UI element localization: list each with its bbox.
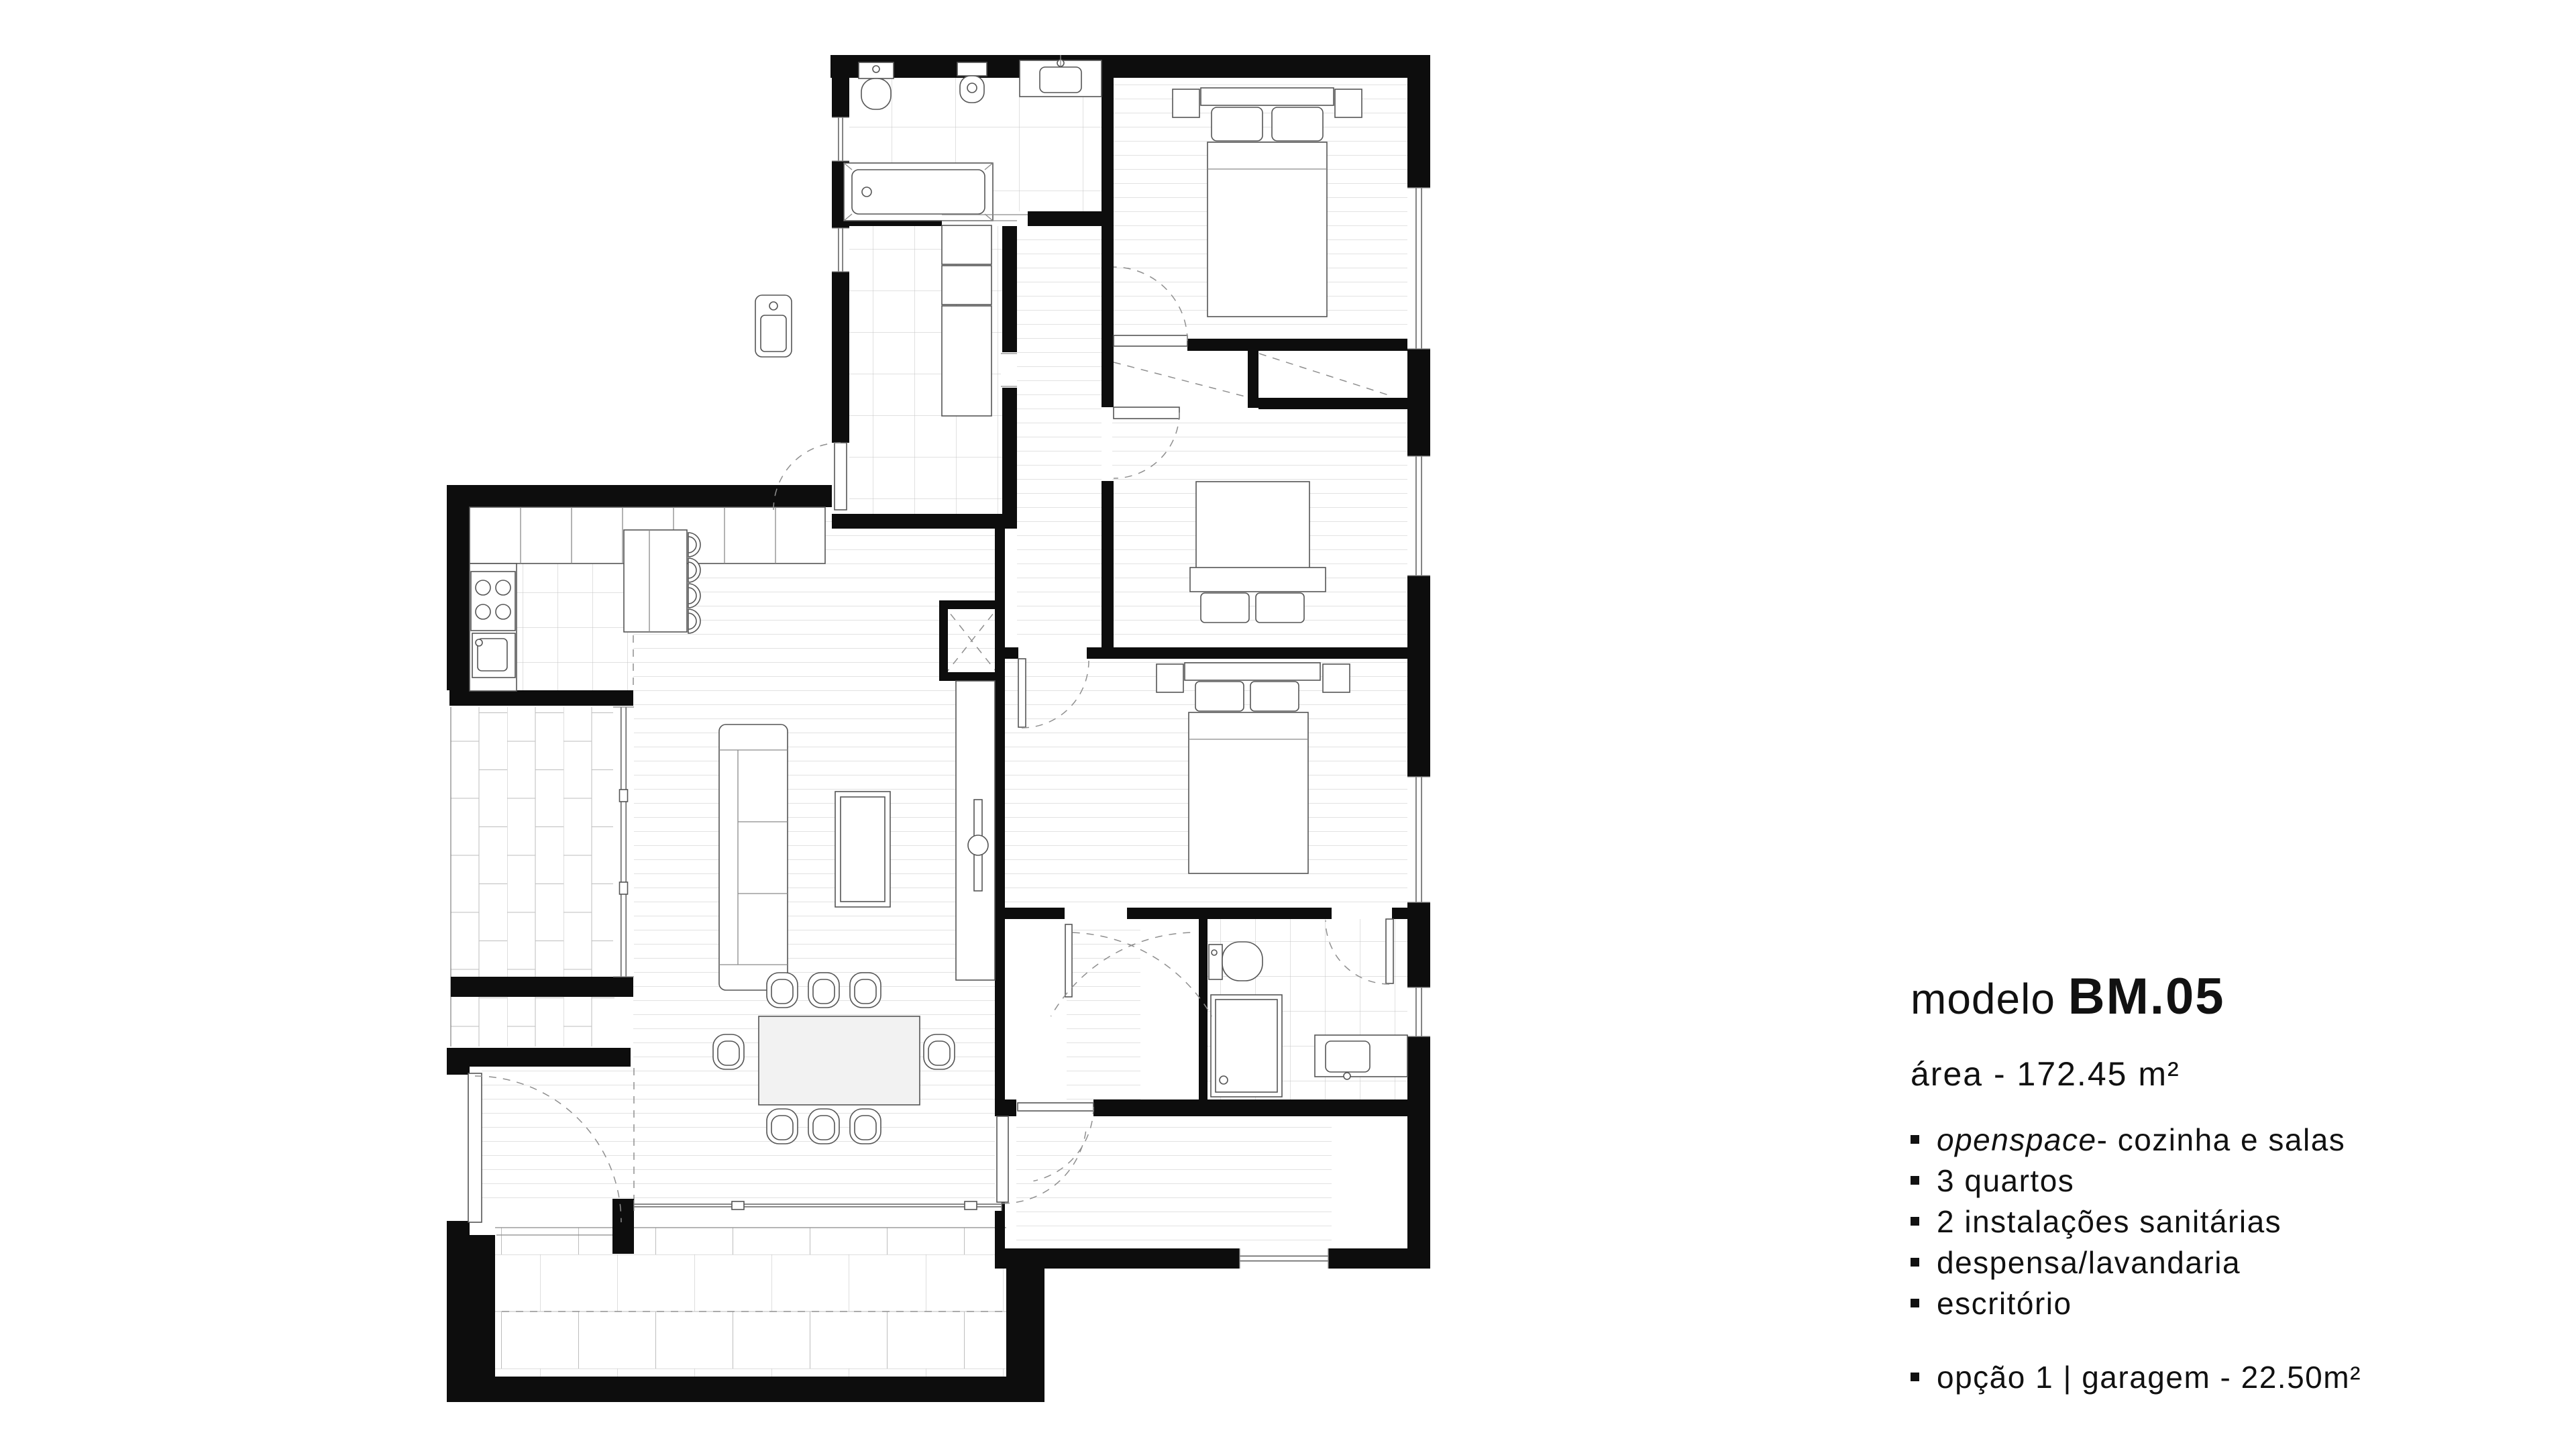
- wall-segment: [995, 600, 1005, 908]
- furniture-outline: [1189, 712, 1308, 873]
- fixture-circle: [1344, 1073, 1350, 1079]
- fixture-circle: [862, 187, 871, 197]
- window: [1407, 188, 1430, 349]
- furniture-outline: [1114, 335, 1187, 346]
- dashed-line: [1259, 354, 1389, 395]
- mullion-mark: [620, 790, 628, 802]
- chair: [924, 1034, 955, 1069]
- furniture-outline: [1326, 1041, 1370, 1072]
- window: [1407, 987, 1430, 1036]
- floor-plan-svg: [436, 40, 1442, 1409]
- window-opening: [1407, 777, 1430, 902]
- furniture-outline: [1386, 919, 1393, 983]
- feature-text: escritório: [1937, 1285, 2072, 1322]
- feature-italic: openspace: [1937, 1122, 2097, 1158]
- model-label: modelo: [1911, 975, 2068, 1023]
- furniture-outline: [719, 724, 788, 990]
- furniture-outline: [1196, 482, 1309, 569]
- wall-segment: [1407, 1036, 1430, 1269]
- furniture-outline: [1018, 659, 1026, 727]
- floor-wood: [1016, 1116, 1332, 1248]
- option-line-wrap: opção 1 | garagem - 22.50m²: [1911, 1356, 2361, 1397]
- furniture-outline: [1114, 407, 1179, 419]
- fixture-circle: [476, 580, 490, 595]
- chair-seat: [855, 979, 876, 1004]
- chair: [850, 973, 881, 1008]
- wall-segment: [995, 1099, 1016, 1116]
- chair-seat: [771, 979, 793, 1004]
- wall-segment: [995, 908, 1065, 919]
- furniture-outline: [1185, 663, 1320, 680]
- wall-segment: [1187, 339, 1407, 351]
- furniture-outline: [1173, 89, 1199, 117]
- furniture-outline: [1335, 89, 1362, 117]
- chair-seat: [928, 1041, 950, 1065]
- window: [832, 228, 849, 272]
- window: [1407, 456, 1430, 576]
- wall-segment: [447, 1377, 1044, 1402]
- furniture-outline: [1201, 88, 1334, 105]
- window-opening: [832, 228, 849, 272]
- floor-plan: [436, 40, 1442, 1409]
- window: [1407, 777, 1430, 902]
- furniture-outline: [835, 443, 847, 510]
- wall-segment: [1002, 226, 1017, 352]
- wall-segment: [1407, 576, 1430, 777]
- fixture-circle: [476, 639, 482, 646]
- floor-plan-page: modelo BM.05 área - 172.45 m² openspace …: [0, 0, 2576, 1449]
- fixture-circle: [1220, 1076, 1228, 1084]
- chair: [850, 1109, 881, 1144]
- furniture-outline: [942, 225, 991, 264]
- dashed-line: [1114, 362, 1245, 396]
- wall-segment: [447, 1221, 470, 1237]
- chair-seat: [855, 1116, 876, 1140]
- floor-brickH: [495, 1228, 1006, 1377]
- furniture-outline: [1272, 107, 1323, 141]
- fixture-circle: [496, 604, 511, 619]
- wall-segment: [1248, 349, 1258, 408]
- furniture-outline: [841, 797, 885, 902]
- floor-wood: [1017, 226, 1102, 647]
- wall-segment: [1392, 908, 1407, 919]
- area-line: área - 172.45 m²: [1911, 1055, 2180, 1093]
- window: [1240, 1248, 1328, 1269]
- window: [832, 117, 849, 161]
- chair-seat: [813, 1116, 835, 1140]
- bullet-icon: [1911, 1258, 1919, 1267]
- feature-item: openspace - cozinha e salas: [1911, 1119, 2345, 1160]
- wall-segment: [995, 518, 1005, 600]
- furniture-outline: [1250, 682, 1299, 711]
- furniture-outline: [942, 266, 991, 305]
- wall-segment: [832, 514, 1017, 529]
- wall-segment: [995, 919, 1005, 1099]
- chair: [808, 1109, 839, 1144]
- furniture-outline: [942, 306, 991, 416]
- feature-item: 3 quartos: [1911, 1160, 2345, 1201]
- window-opening: [1407, 188, 1430, 349]
- bullet-icon: [1911, 1176, 1919, 1185]
- chair: [767, 1109, 798, 1144]
- mullion-mark: [620, 882, 628, 894]
- feature-item: 2 instalações sanitárias: [1911, 1201, 2345, 1242]
- fixture-circle: [496, 580, 511, 595]
- floor-wood: [482, 1068, 633, 1209]
- wall-segment: [449, 690, 633, 706]
- wall-segment: [1102, 55, 1114, 339]
- wall-segment: [1407, 78, 1430, 188]
- window-opening: [1407, 456, 1430, 576]
- fixture-circle: [769, 302, 777, 310]
- feature-item: despensa/lavandaria: [1911, 1242, 2345, 1283]
- window-opening: [1407, 987, 1430, 1036]
- furniture-outline: [1201, 593, 1249, 623]
- furniture-outline: [1256, 593, 1304, 623]
- wall-segment: [832, 55, 849, 117]
- wall-segment: [1002, 388, 1017, 514]
- mullion-mark: [732, 1201, 744, 1210]
- furniture-outline: [861, 78, 891, 109]
- furniture-outline: [957, 62, 987, 76]
- wall-segment: [1093, 1099, 1407, 1116]
- furniture-outline: [1207, 142, 1327, 317]
- wall-segment: [1102, 339, 1114, 407]
- fixture-circle: [873, 66, 879, 72]
- window: [634, 1200, 1002, 1211]
- feature-text: despensa/lavandaria: [1937, 1244, 2241, 1281]
- feature-list: openspace - cozinha e salas3 quartos2 in…: [1911, 1119, 2345, 1324]
- furniture-outline: [1212, 107, 1263, 141]
- furniture-outline: [1222, 942, 1263, 981]
- feature-text: 3 quartos: [1937, 1163, 2074, 1199]
- fixture-circle: [968, 835, 988, 855]
- wall-segment: [447, 1048, 631, 1067]
- feature-text: - cozinha e salas: [2097, 1122, 2346, 1158]
- furniture-outline: [1065, 924, 1072, 997]
- wall-segment: [1258, 398, 1407, 409]
- wall-segment: [1407, 349, 1430, 456]
- window-opening: [1240, 1248, 1328, 1269]
- wall-segment: [447, 1067, 470, 1075]
- bullet-icon: [1911, 1299, 1919, 1307]
- wall-segment: [1028, 211, 1102, 226]
- chair: [767, 973, 798, 1008]
- furniture-outline: [624, 530, 687, 632]
- window-opening: [634, 1200, 1002, 1211]
- furniture-outline: [1040, 67, 1081, 93]
- feature-item: escritório: [1911, 1283, 2345, 1324]
- wall-segment: [1087, 647, 1407, 659]
- wall-segment: [1127, 908, 1332, 919]
- wall-segment: [1328, 1248, 1407, 1269]
- table-top: [759, 1016, 920, 1105]
- chair: [713, 1034, 744, 1069]
- furniture-outline: [1190, 568, 1326, 592]
- wall-segment: [612, 1199, 634, 1254]
- chair: [808, 973, 839, 1008]
- furniture-outline: [761, 315, 786, 352]
- option-line: opção 1 | garagem - 22.50m²: [1911, 1356, 2361, 1397]
- wall-segment: [830, 55, 1430, 78]
- wall-segment: [1102, 481, 1114, 647]
- wall-segment: [447, 1235, 495, 1377]
- wall-segment: [995, 1201, 1005, 1269]
- option-text: opção 1 | garagem - 22.50m²: [1937, 1359, 2361, 1395]
- model-code: BM.05: [2068, 968, 2225, 1025]
- fixture-circle: [476, 604, 490, 619]
- door-opening: [1001, 352, 1017, 388]
- furniture-outline: [1157, 664, 1183, 692]
- wall-segment: [451, 977, 633, 997]
- bullet-icon: [1911, 1373, 1919, 1381]
- wall-segment: [1005, 1248, 1240, 1269]
- furniture-outline: [997, 1116, 1008, 1202]
- bullet-icon: [1911, 1135, 1919, 1144]
- wall-segment: [1005, 647, 1018, 659]
- window: [613, 707, 634, 977]
- furniture-outline: [1195, 682, 1244, 711]
- bullet-icon: [1911, 1217, 1919, 1226]
- furniture-outline: [1018, 1103, 1093, 1111]
- furniture-outline: [471, 572, 515, 631]
- furniture-outline: [1323, 664, 1350, 692]
- wall-segment: [1199, 919, 1207, 1099]
- furniture-outline: [468, 1073, 482, 1222]
- chair-seat: [718, 1041, 739, 1065]
- chair-seat: [813, 979, 835, 1004]
- window-opening: [613, 707, 634, 977]
- wall-segment: [939, 600, 948, 681]
- fixture-circle: [967, 83, 977, 93]
- wall-segment: [1407, 902, 1430, 987]
- feature-text: 2 instalações sanitárias: [1937, 1203, 2282, 1240]
- fixture-circle: [1212, 950, 1217, 955]
- wall-segment: [832, 272, 849, 443]
- mullion-mark: [965, 1201, 977, 1210]
- chair-seat: [771, 1116, 793, 1140]
- page-title: modelo BM.05: [1911, 967, 2225, 1026]
- window-opening: [832, 117, 849, 161]
